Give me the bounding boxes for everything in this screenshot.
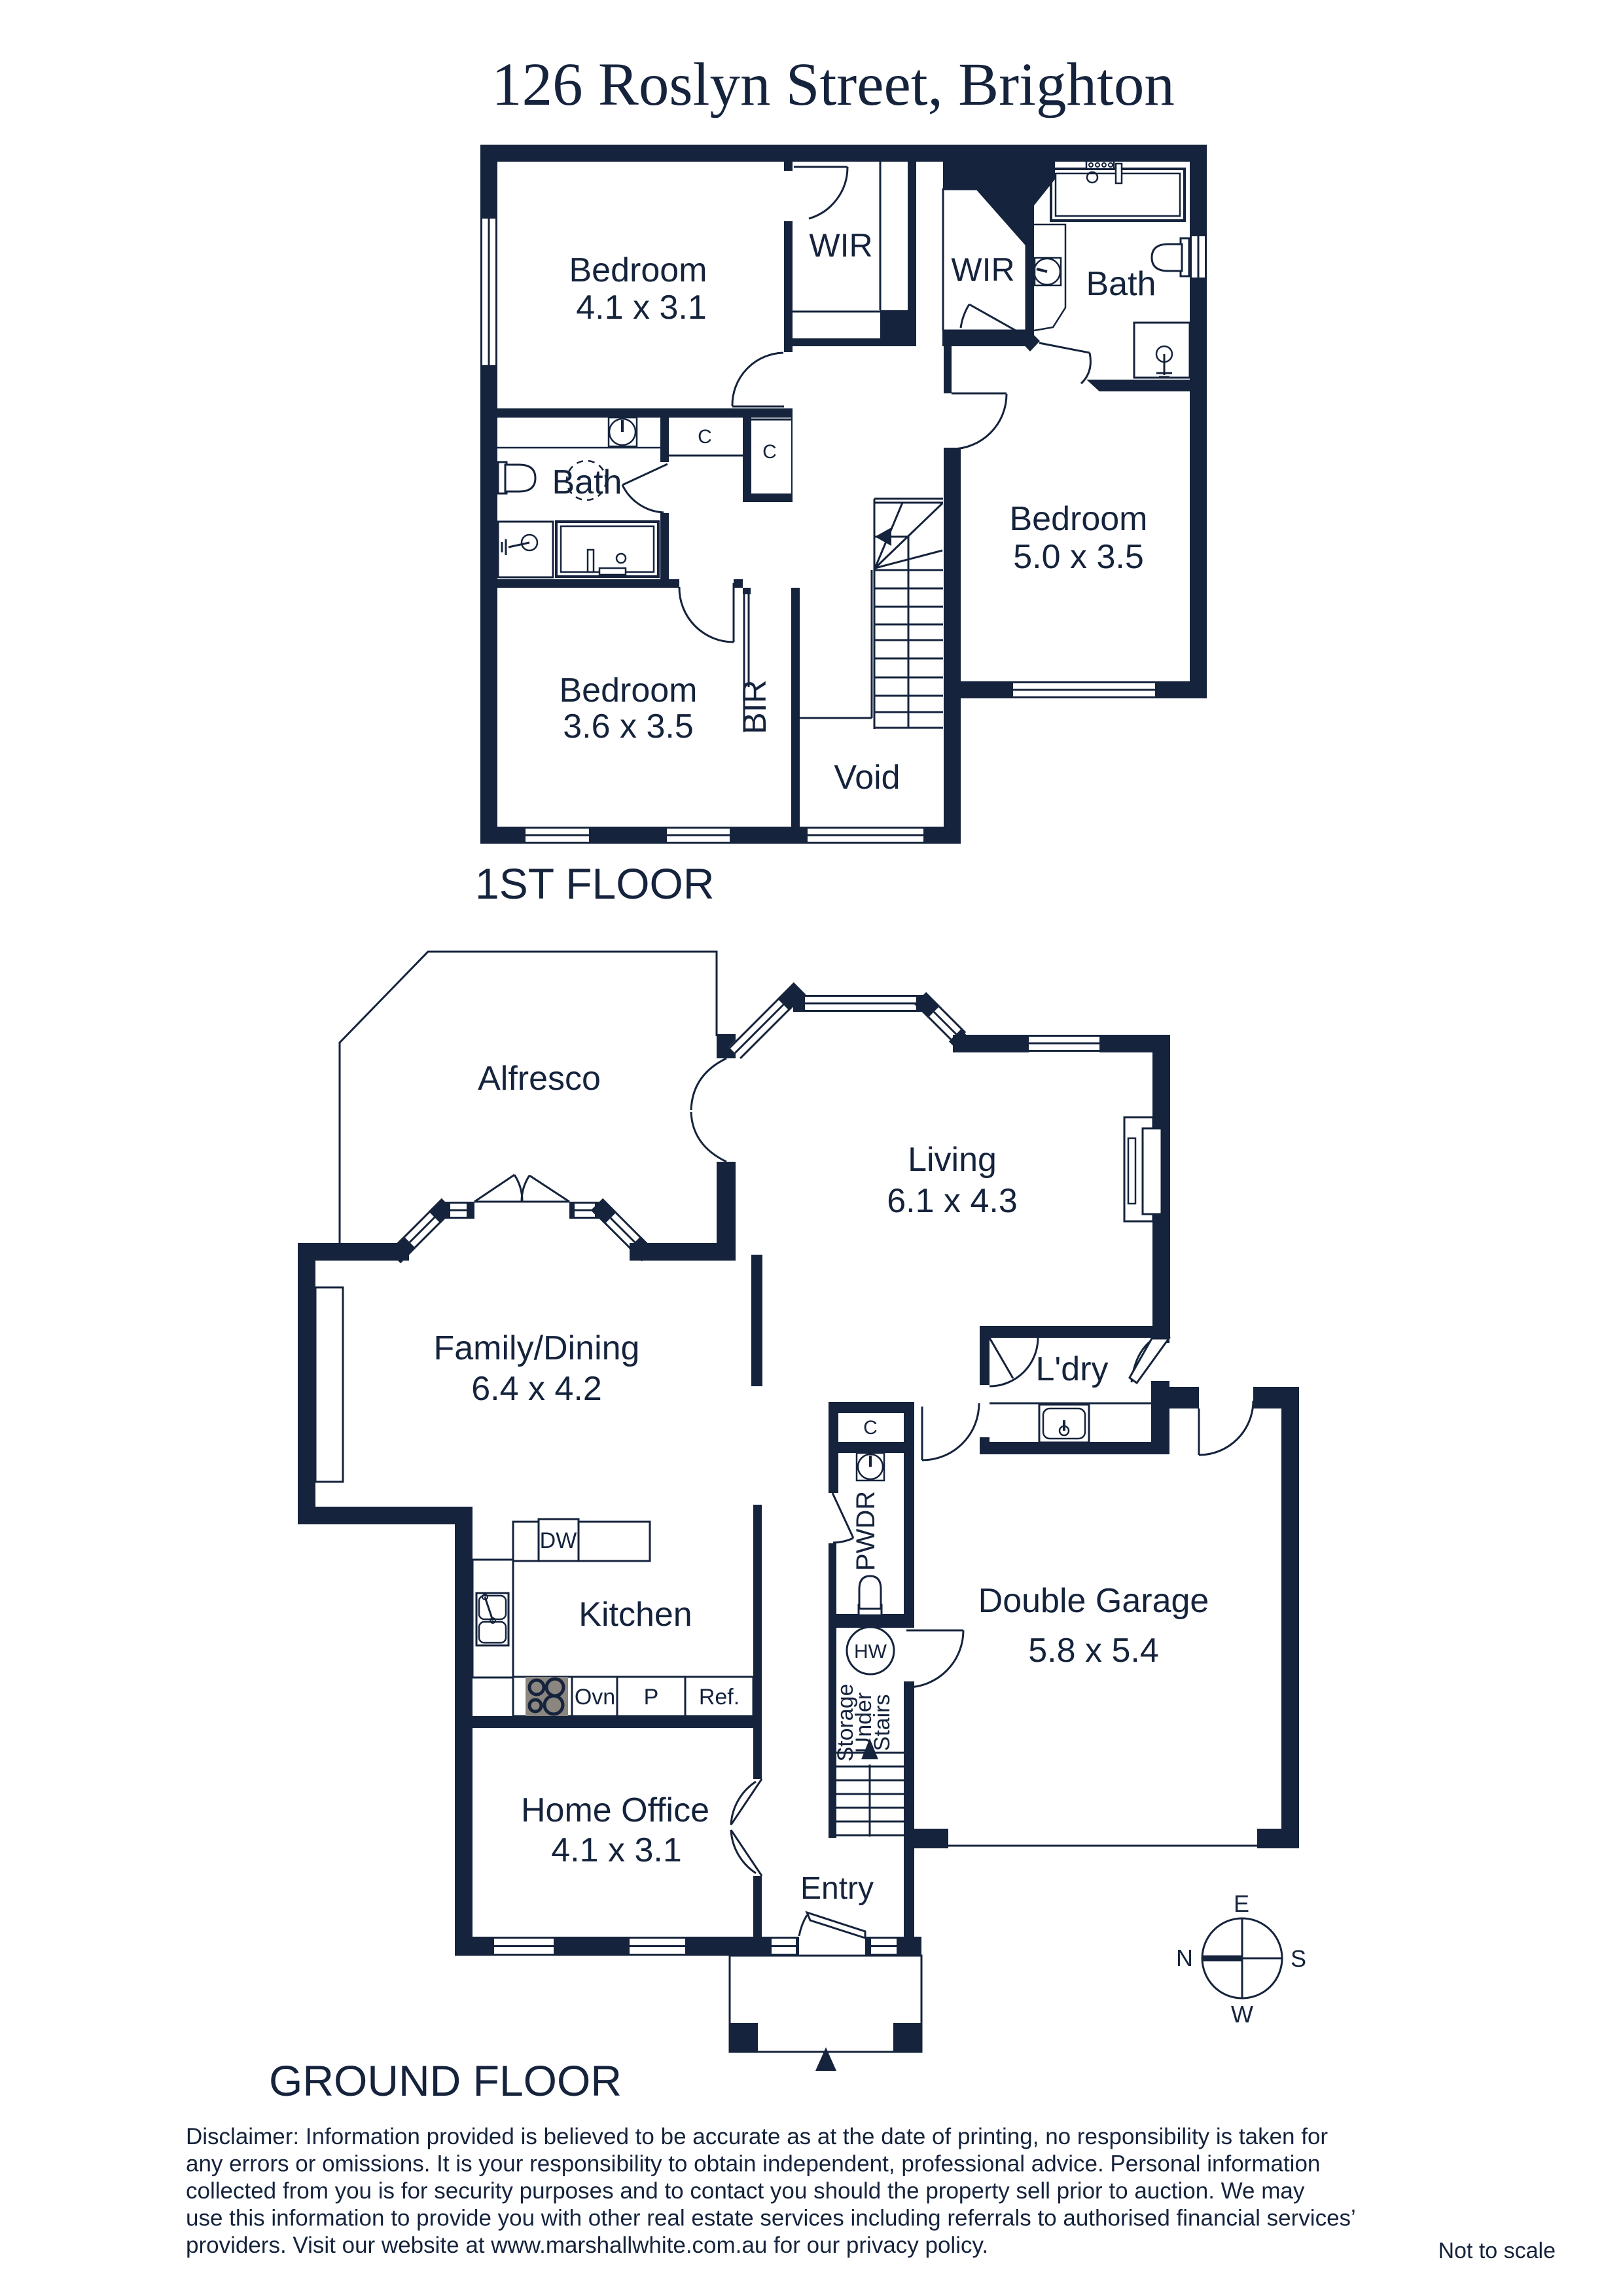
svg-text:Family/Dining: Family/Dining — [434, 1329, 640, 1367]
svg-text:BIR: BIR — [736, 679, 773, 734]
svg-text:collected from you is for secu: collected from you is for security purpo… — [186, 2178, 1305, 2204]
svg-text:Stairs: Stairs — [870, 1695, 895, 1751]
svg-text:P: P — [644, 1685, 659, 1710]
svg-text:Void: Void — [834, 759, 900, 797]
svg-text:Not to scale: Not to scale — [1438, 2238, 1556, 2263]
svg-text:Bath: Bath — [552, 463, 622, 501]
svg-text:WIR: WIR — [951, 251, 1014, 288]
svg-text:S: S — [1291, 1945, 1306, 1972]
svg-text:any errors or omissions. It is: any errors or omissions. It is your resp… — [186, 2151, 1320, 2177]
svg-text:Entry: Entry — [800, 1871, 874, 1906]
svg-text:E: E — [1234, 1890, 1249, 1917]
svg-text:4.1 x 3.1: 4.1 x 3.1 — [576, 289, 706, 327]
svg-text:Alfresco: Alfresco — [478, 1060, 601, 1098]
svg-text:PWDR: PWDR — [851, 1491, 880, 1571]
svg-text:providers. Visit our website a: providers. Visit our website at www.mars… — [186, 2233, 988, 2258]
svg-text:Home Office: Home Office — [521, 1791, 709, 1829]
svg-text:GROUND FLOOR: GROUND FLOOR — [269, 2056, 622, 2105]
svg-text:Bath: Bath — [1086, 265, 1156, 303]
svg-text:6.4 x 4.2: 6.4 x 4.2 — [471, 1370, 601, 1408]
svg-text:126 Roslyn Street, Brighton: 126 Roslyn Street, Brighton — [491, 51, 1175, 118]
svg-text:3.6 x 3.5: 3.6 x 3.5 — [563, 708, 693, 745]
svg-text:Living: Living — [908, 1141, 997, 1179]
svg-text:DW: DW — [540, 1528, 577, 1553]
svg-text:1ST FLOOR: 1ST FLOOR — [475, 859, 715, 908]
svg-text:Bedroom: Bedroom — [560, 672, 698, 709]
svg-text:L'dry: L'dry — [1035, 1350, 1108, 1388]
svg-text:C: C — [698, 426, 712, 448]
svg-text:Bedroom: Bedroom — [569, 251, 707, 289]
svg-text:4.1 x 3.1: 4.1 x 3.1 — [551, 1831, 681, 1869]
svg-text:Ref.: Ref. — [699, 1685, 740, 1710]
svg-text:C: C — [762, 441, 777, 463]
svg-text:HW: HW — [854, 1641, 887, 1662]
svg-text:Bedroom: Bedroom — [1010, 500, 1148, 538]
svg-text:Kitchen: Kitchen — [579, 1596, 692, 1634]
svg-text:6.1 x 4.3: 6.1 x 4.3 — [887, 1182, 1017, 1220]
svg-text:Double Garage: Double Garage — [978, 1582, 1209, 1620]
svg-text:5.0 x 3.5: 5.0 x 3.5 — [1013, 538, 1143, 576]
svg-text:C: C — [863, 1417, 878, 1439]
svg-text:Disclaimer: Information provid: Disclaimer: Information provided is beli… — [186, 2124, 1328, 2149]
svg-text:N: N — [1176, 1945, 1193, 1971]
svg-text:Ovn: Ovn — [575, 1685, 615, 1710]
svg-text:WIR: WIR — [809, 227, 872, 264]
svg-text:5.8 x 5.4: 5.8 x 5.4 — [1028, 1632, 1158, 1670]
svg-text:use this information to provid: use this information to provide you with… — [186, 2206, 1356, 2231]
svg-text:W: W — [1231, 2001, 1253, 2028]
